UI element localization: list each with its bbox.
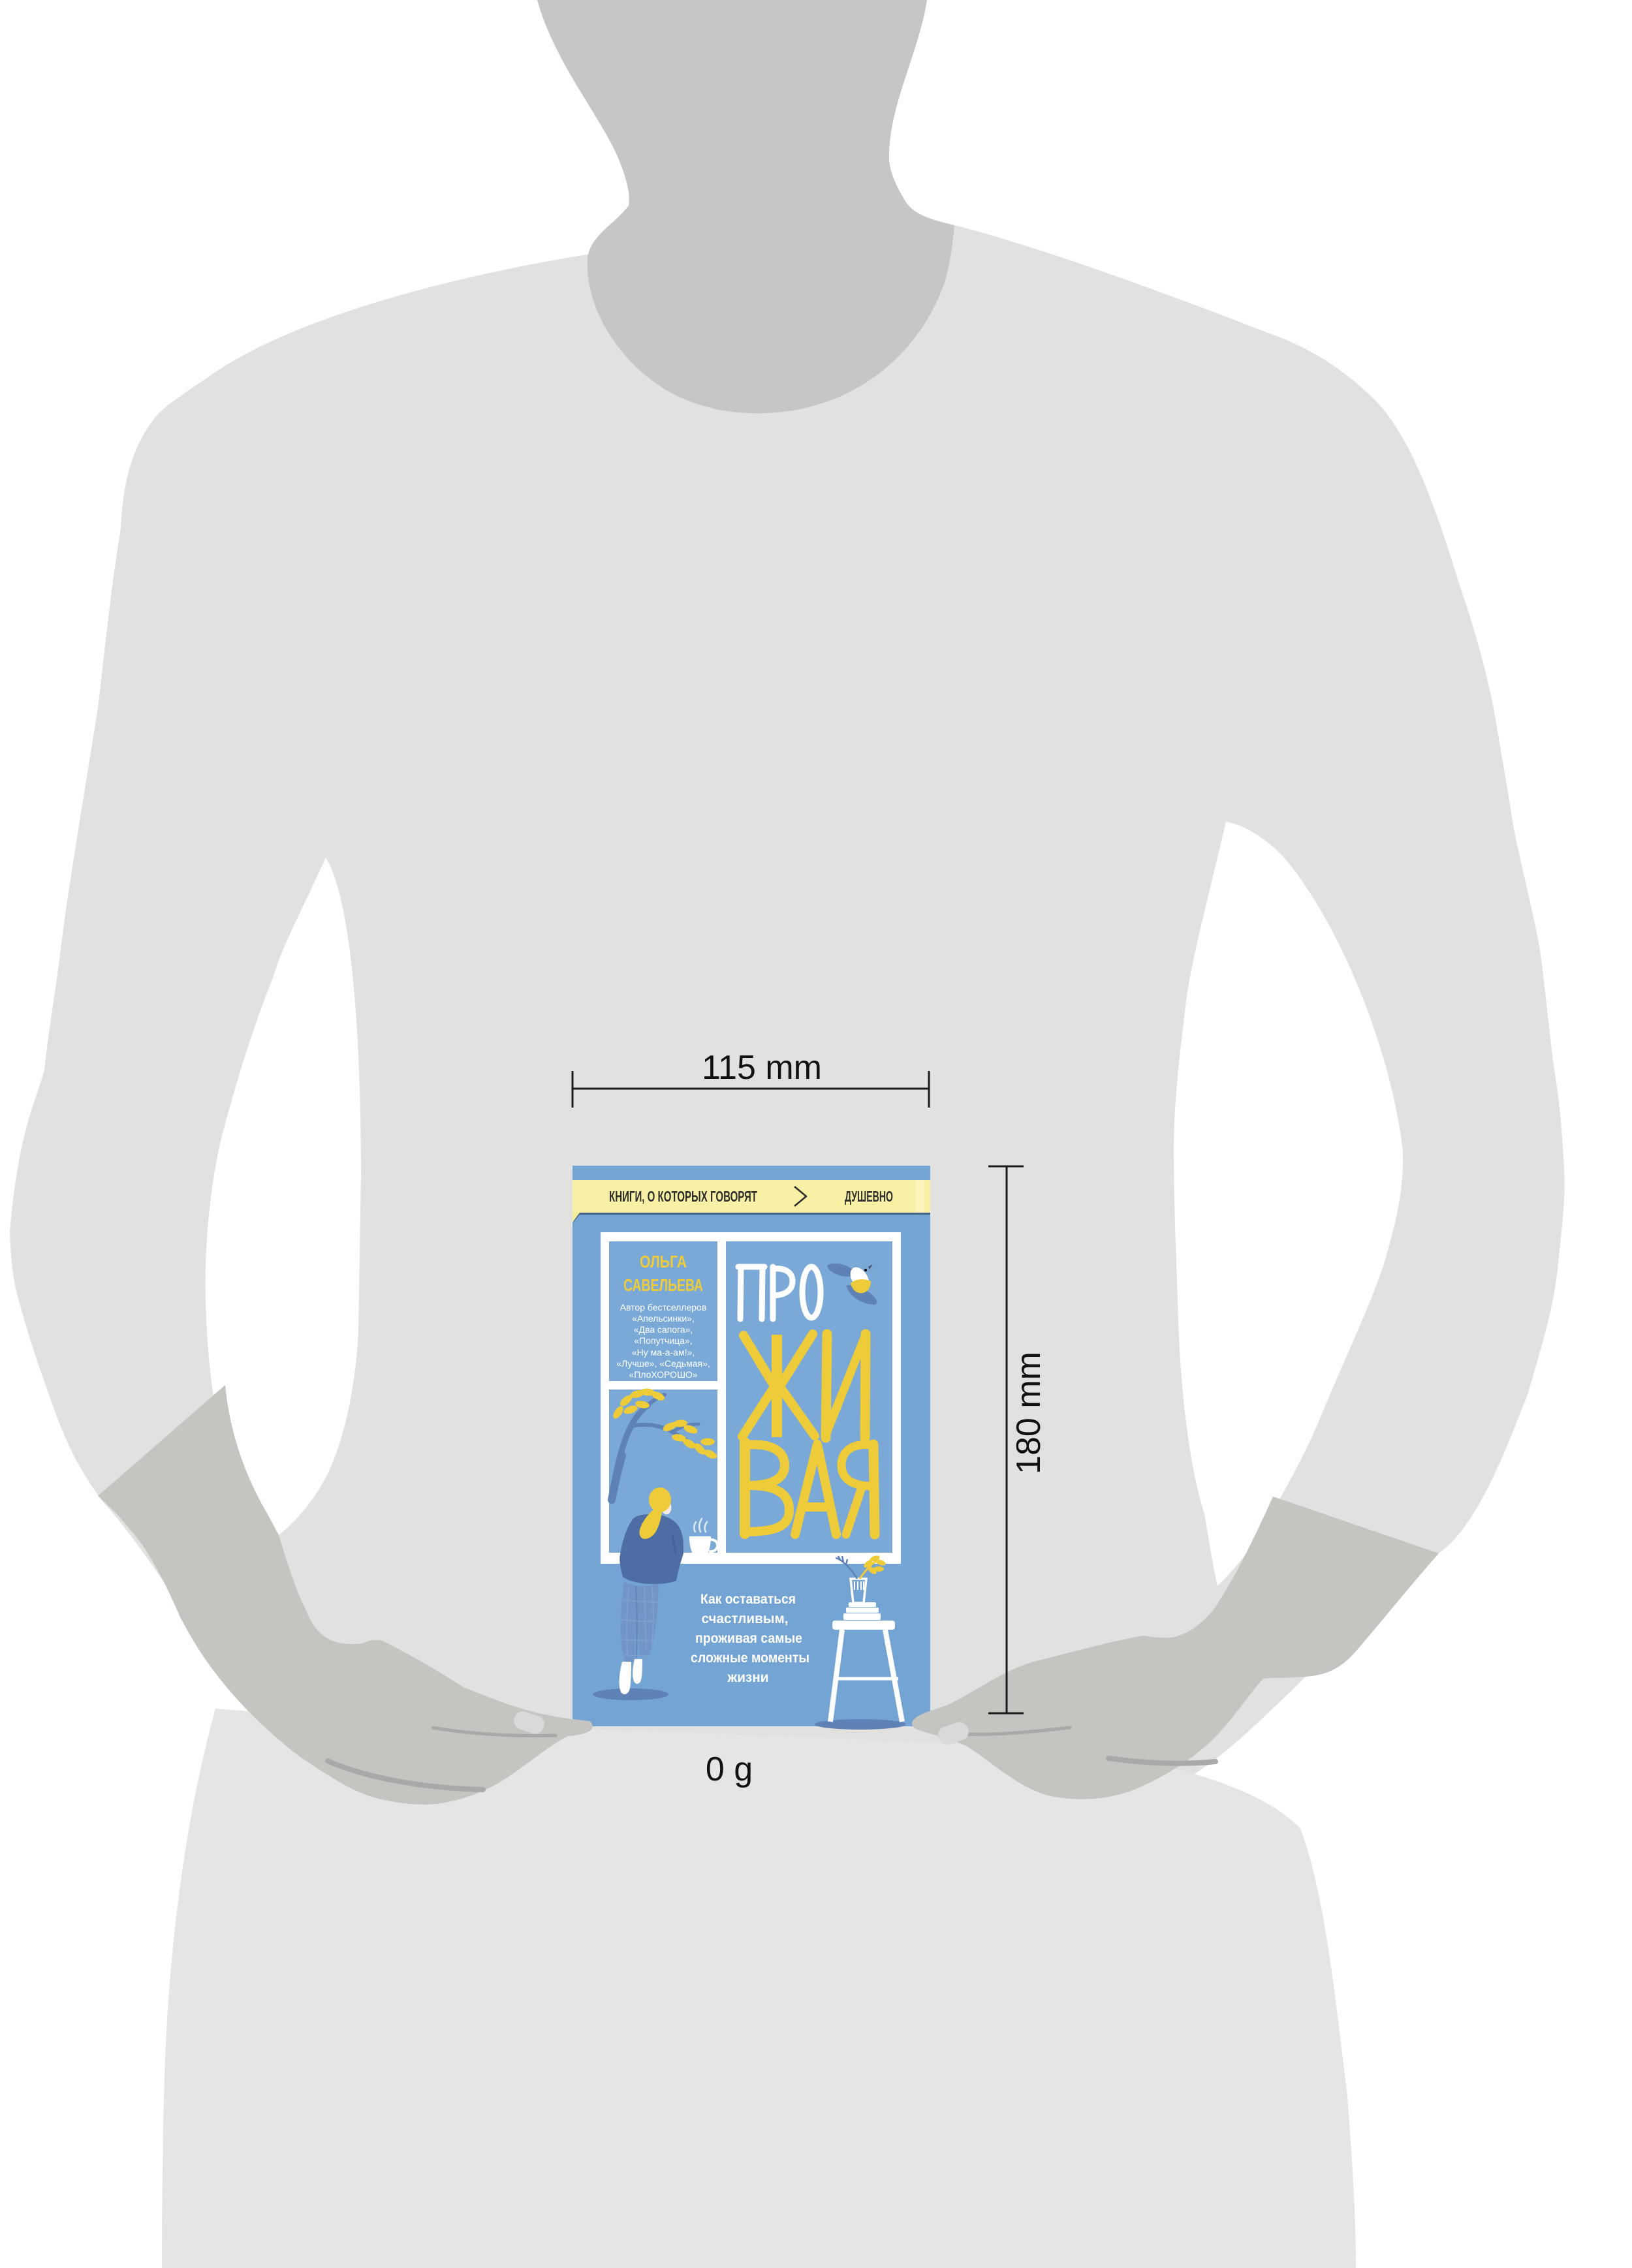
svg-text:Автор бестселлеров: Автор бестселлеров	[620, 1302, 707, 1313]
svg-text:115 mm: 115 mm	[702, 1049, 822, 1087]
svg-text:КНИГИ, О КОТОРЫХ ГОВОРЯТ: КНИГИ, О КОТОРЫХ ГОВОРЯТ	[609, 1188, 757, 1205]
svg-text:180 mm: 180 mm	[1010, 1352, 1048, 1474]
svg-text:«Лучше», «Седьмая»,: «Лучше», «Седьмая»,	[616, 1358, 710, 1369]
svg-text:проживая самые: проживая самые	[695, 1631, 802, 1646]
svg-text:«Апельсинки»,: «Апельсинки»,	[632, 1313, 695, 1324]
svg-text:0 g: 0 g	[706, 1750, 753, 1788]
svg-text:ОЛЬГА: ОЛЬГА	[640, 1252, 687, 1271]
svg-text:«Ну ма-а-ам!»,: «Ну ма-а-ам!»,	[632, 1347, 695, 1358]
svg-text:сложные моменты: сложные моменты	[691, 1651, 809, 1666]
svg-text:счастливым,: счастливым,	[702, 1611, 789, 1626]
svg-text:САВЕЛЬЕВА: САВЕЛЬЕВА	[623, 1275, 703, 1295]
svg-text:Как оставаться: Как оставаться	[700, 1592, 796, 1607]
svg-text:ДУШЕВНО: ДУШЕВНО	[845, 1188, 893, 1205]
svg-text:«Попутчица»,: «Попутчица»,	[634, 1335, 692, 1346]
svg-text:«Два сапога»,: «Два сапога»,	[634, 1324, 693, 1335]
svg-text:жизни: жизни	[727, 1670, 769, 1685]
svg-text:«ПлоХОРОШО»: «ПлоХОРОШО»	[629, 1369, 697, 1380]
